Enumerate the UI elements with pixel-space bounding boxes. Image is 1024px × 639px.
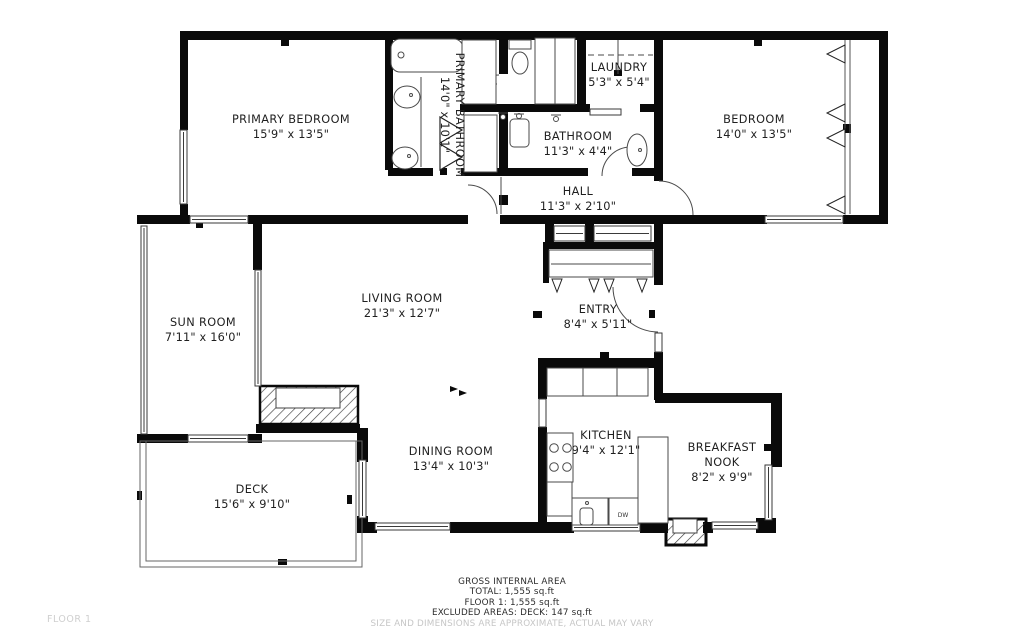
shower-icon — [462, 40, 496, 104]
vanity-sinks-icon — [392, 77, 421, 169]
closet-box — [464, 115, 497, 172]
room-label-sun-room: SUN ROOM 7'11" x 16'0" — [165, 315, 241, 345]
dishwasher-icon: DW — [609, 498, 638, 525]
room-label-dining-room: DINING ROOM 13'4" x 10'3" — [409, 444, 493, 474]
gross-internal-area-title: GROSS INTERNAL AREA — [0, 577, 1024, 587]
room-label-living-room: LIVING ROOM 21'3" x 12'7" — [361, 291, 442, 321]
room-label-laundry: LAUNDRY 5'3" x 5'4" — [588, 60, 649, 90]
floor-label: FLOOR 1 — [47, 614, 92, 625]
total-area: TOTAL: 1,555 sq.ft — [0, 587, 1024, 597]
kitchen-sink-icon — [572, 498, 608, 525]
bedroom-door-icon — [659, 181, 693, 215]
room-label-entry: ENTRY 8'4" x 5'11" — [564, 302, 633, 332]
excluded-areas: EXCLUDED AREAS: DECK: 147 sq.ft — [0, 608, 1024, 618]
linen-cabinet-icon — [535, 38, 575, 104]
stove-icon — [547, 433, 573, 482]
room-label-breakfast-nook: BREAKFAST NOOK 8'2" x 9'9" — [680, 440, 764, 485]
room-label-primary-bedroom: PRIMARY BEDROOM 15'9" x 13'5" — [232, 112, 350, 142]
chimney-icon — [666, 519, 706, 545]
entry-closet-icon — [549, 250, 653, 292]
fireplace-icon — [260, 386, 358, 424]
hall-door-icon — [468, 185, 497, 214]
svg-text:DW: DW — [618, 512, 629, 519]
bathroom-sink-icon — [627, 134, 647, 166]
disclaimer-text: SIZE AND DIMENSIONS ARE APPROXIMATE, ACT… — [0, 619, 1024, 629]
room-label-deck: DECK 15'6" x 9'10" — [214, 482, 290, 512]
room-label-bathroom: BATHROOM 11'3" x 4'4" — [544, 129, 613, 159]
floor-plan-svg: DW — [0, 0, 1024, 639]
floorplan-page: { "rooms": { "primary_bedroom": {"name":… — [0, 0, 1024, 639]
pedestal-sink-icon — [510, 114, 529, 148]
room-label-kitchen: KITCHEN 9'4" x 12'1" — [572, 428, 641, 458]
room-label-hall: HALL 11'3" x 2'10" — [540, 184, 616, 214]
room-label-bedroom: BEDROOM 14'0" x 13'5" — [716, 112, 792, 142]
floor1-area: FLOOR 1: 1,555 sq.ft — [0, 598, 1024, 608]
faucet-icon — [551, 115, 561, 122]
room-label-primary-bathroom: PRIMARY BATHROOM 14'0" x 10'1" — [437, 53, 467, 178]
area-summary: GROSS INTERNAL AREA TOTAL: 1,555 sq.ft F… — [0, 577, 1024, 629]
toilet-icon — [509, 40, 531, 74]
